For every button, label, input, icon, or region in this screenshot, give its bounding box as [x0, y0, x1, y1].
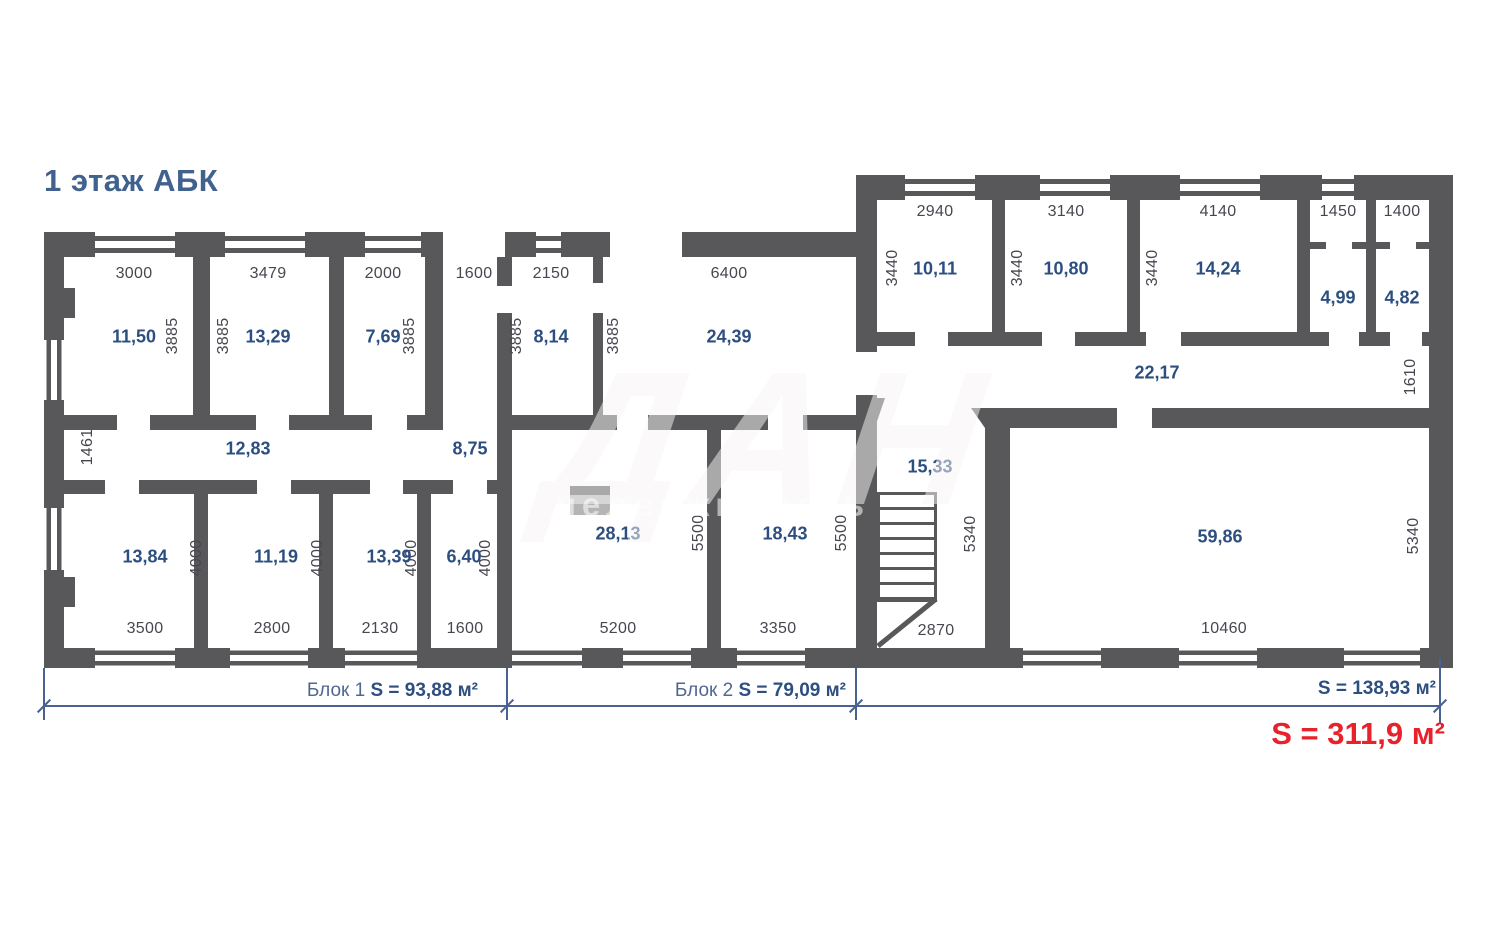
- vent-shaft: [570, 486, 610, 495]
- dim-label: 3479: [250, 265, 287, 283]
- area-label: 10,80: [1043, 259, 1088, 280]
- wall: [44, 232, 64, 668]
- dim-label: 4000: [309, 540, 327, 577]
- window: [365, 228, 421, 261]
- door-opening: [497, 286, 512, 313]
- dim-label: 3885: [508, 318, 526, 355]
- entrance-opening: [610, 232, 682, 257]
- block1-name: Блок 1: [307, 680, 365, 701]
- area-label: 24,39: [706, 327, 751, 348]
- total-area-label: S = 311,9 м²: [1145, 716, 1445, 752]
- wall: [329, 257, 344, 415]
- dim-label: 2150: [533, 265, 570, 283]
- area-label: 8,75: [452, 439, 487, 460]
- window: [536, 228, 561, 261]
- wall: [1127, 200, 1140, 332]
- block1-area-label: Блок 1 S = 93,88 м²: [260, 680, 478, 702]
- wall: [497, 232, 512, 480]
- wall: [985, 408, 1010, 648]
- door-opening: [256, 415, 289, 430]
- door-opening: [1326, 242, 1352, 249]
- block2-name: Блок 2: [675, 680, 733, 701]
- dim-label: 5340: [962, 516, 980, 553]
- block2-area-label: Блок 2 S = 79,09 м²: [628, 680, 846, 702]
- dim-label: 3500: [127, 620, 164, 638]
- wall: [707, 430, 721, 648]
- area-label: 13,29: [245, 327, 290, 348]
- window: [1322, 171, 1354, 204]
- door-opening: [1117, 408, 1152, 428]
- dim-label: 5340: [1405, 518, 1423, 555]
- door-opening: [372, 415, 407, 430]
- wall: [193, 257, 210, 415]
- dim-label: 10460: [1201, 620, 1247, 638]
- dim-label: 5500: [833, 515, 851, 552]
- dim-label: 5200: [600, 620, 637, 638]
- plan-overlay-shapes: [0, 0, 1500, 929]
- window: [1180, 171, 1260, 204]
- door-opening: [1146, 332, 1181, 346]
- door-opening: [915, 332, 948, 346]
- dim-label: 3885: [164, 318, 182, 355]
- staircase: [877, 492, 937, 602]
- page-title: 1 этаж АБК: [44, 163, 218, 199]
- dimension-guide: [506, 668, 508, 720]
- door-opening: [617, 415, 648, 430]
- block3-area: S = 138,93 м²: [1318, 678, 1436, 699]
- dim-label: 1400: [1384, 203, 1421, 221]
- door-opening: [1390, 332, 1422, 346]
- dim-label: 2800: [254, 620, 291, 638]
- area-label: 15,33: [907, 457, 952, 478]
- dim-label: 2130: [362, 620, 399, 638]
- area-label: 59,86: [1197, 527, 1242, 548]
- area-label: 4,82: [1384, 288, 1419, 309]
- area-label: 11,19: [254, 547, 298, 568]
- dim-label: 1461: [79, 429, 97, 466]
- entrance-opening: [443, 232, 505, 257]
- area-label: 7,69: [365, 327, 400, 348]
- floor-plan: 1 этаж АБК 3000 3479 2000 1600 2150 6400…: [0, 0, 1500, 929]
- area-label: 8,14: [533, 327, 568, 348]
- door-opening: [1329, 332, 1359, 346]
- block1-area: S = 93,88 м²: [370, 680, 478, 701]
- dim-label: 3140: [1048, 203, 1085, 221]
- block3-area-label: S = 138,93 м²: [1220, 678, 1436, 700]
- window: [40, 508, 68, 570]
- window: [1040, 171, 1110, 204]
- dim-label: 1610: [1402, 359, 1420, 396]
- dim-label: 3885: [215, 318, 233, 355]
- door-opening: [593, 283, 603, 313]
- window: [1023, 644, 1101, 672]
- dimension-line: [44, 705, 1440, 707]
- wall-pilaster: [64, 288, 75, 318]
- dim-label: 1600: [456, 265, 493, 283]
- wall: [593, 257, 603, 415]
- window: [95, 644, 175, 672]
- wall: [1297, 200, 1310, 332]
- dimension-guide: [855, 668, 857, 720]
- vent-shaft: [570, 495, 610, 515]
- dim-label: 2940: [917, 203, 954, 221]
- block2-area: S = 79,09 м²: [738, 680, 846, 701]
- window: [512, 644, 582, 672]
- area-label: 12,83: [225, 439, 270, 460]
- wall-chamfer: [971, 408, 985, 428]
- door-opening: [1390, 242, 1416, 249]
- door-opening: [1042, 332, 1075, 346]
- dim-label: 3885: [605, 318, 623, 355]
- dim-label: 3440: [1144, 250, 1162, 287]
- area-label: 13,84: [122, 547, 167, 568]
- dim-label: 3440: [884, 250, 902, 287]
- window: [623, 644, 691, 672]
- window: [905, 171, 975, 204]
- window: [225, 228, 305, 261]
- door-opening: [453, 480, 487, 494]
- dim-label: 2000: [365, 265, 402, 283]
- area-label: 13,39: [366, 547, 411, 568]
- wall: [985, 408, 1429, 428]
- dim-label: 4000: [188, 540, 206, 577]
- wall: [992, 200, 1005, 332]
- dim-label: 3000: [116, 265, 153, 283]
- door-opening: [117, 415, 150, 430]
- door-opening: [105, 480, 139, 494]
- dimension-guide: [43, 668, 45, 720]
- area-label: 10,11: [913, 259, 957, 280]
- dim-label: 5500: [690, 515, 708, 552]
- area-label: 22,17: [1134, 363, 1179, 384]
- wall: [856, 175, 877, 648]
- wall: [497, 480, 512, 668]
- door-opening: [856, 352, 877, 395]
- wall: [1429, 175, 1453, 668]
- door-opening: [257, 480, 291, 494]
- dim-label: 3885: [401, 318, 419, 355]
- dimension-guide: [1439, 658, 1441, 724]
- window: [345, 644, 417, 672]
- dim-label: 2870: [918, 622, 955, 640]
- wall-pilaster: [64, 577, 75, 607]
- window: [737, 644, 805, 672]
- dim-label: 3350: [760, 620, 797, 638]
- wall: [425, 232, 443, 430]
- window: [95, 228, 175, 261]
- window: [1344, 644, 1420, 672]
- area-label: 14,24: [1195, 259, 1240, 280]
- window: [230, 644, 308, 672]
- dim-label: 6400: [711, 265, 748, 283]
- window: [1179, 644, 1257, 672]
- wall: [505, 415, 877, 430]
- dim-label: 1450: [1320, 203, 1357, 221]
- door-opening: [370, 480, 403, 494]
- area-label: 11,50: [112, 327, 156, 348]
- area-label: 18,43: [762, 524, 807, 545]
- area-label: 28,13: [595, 524, 640, 545]
- area-label: 4,99: [1320, 288, 1355, 309]
- dim-label: 4140: [1200, 203, 1237, 221]
- door-opening: [768, 415, 803, 430]
- wall: [1366, 200, 1376, 332]
- dim-label: 1600: [447, 620, 484, 638]
- dim-label: 3440: [1009, 250, 1027, 287]
- area-label: 6,40: [446, 547, 481, 568]
- window: [40, 340, 68, 400]
